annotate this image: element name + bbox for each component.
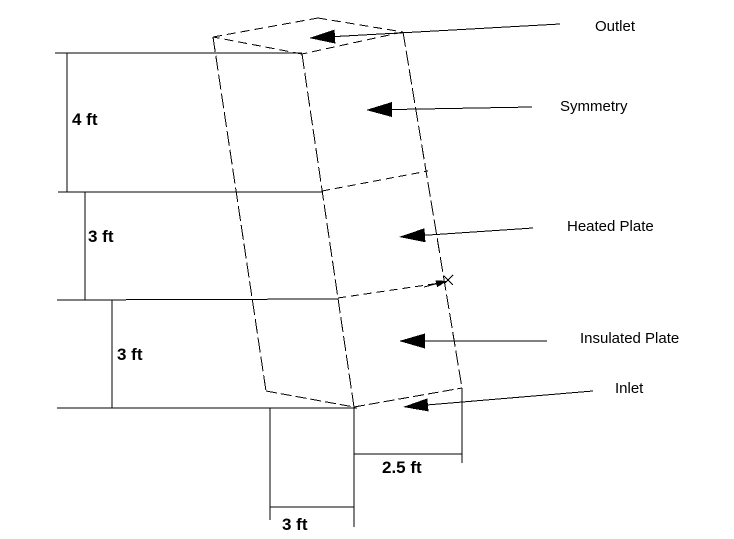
box-top-back-left xyxy=(213,18,318,37)
box-bottom-left-edge xyxy=(266,391,354,407)
box-edge-front xyxy=(302,54,354,407)
diagram-canvas: Outlet Symmetry Heated Plate Insulated P… xyxy=(0,0,734,539)
divider-insulated-top xyxy=(338,283,440,298)
inlet-arrow-line xyxy=(428,391,593,405)
dimension-lower-height: 3 ft xyxy=(117,346,143,364)
x-mark-stroke-2 xyxy=(444,275,453,284)
dimension-base-bottom: 3 ft xyxy=(282,516,308,534)
symmetry-arrow-head xyxy=(366,102,392,117)
label-outlet: Outlet xyxy=(595,19,635,35)
dimension-middle-height: 3 ft xyxy=(88,228,114,246)
box-edge-right xyxy=(403,32,462,388)
label-insulated-plate: Insulated Plate xyxy=(580,331,679,347)
diagram-geometry xyxy=(0,0,734,539)
dimension-upper-height: 4 ft xyxy=(72,111,98,129)
box-bottom-right-edge xyxy=(354,388,462,407)
outlet-arrow-line xyxy=(335,24,560,37)
heated-plate-arrow-head xyxy=(399,228,425,242)
ext-line-3 xyxy=(57,299,338,300)
outlet-arrow-head xyxy=(309,30,335,44)
divider-heated-top xyxy=(322,171,428,191)
insulated-plate-arrow-head xyxy=(399,334,425,349)
symmetry-arrow-line xyxy=(392,107,532,110)
label-inlet: Inlet xyxy=(615,381,643,397)
dimension-base-right: 2.5 ft xyxy=(382,459,422,477)
label-symmetry: Symmetry xyxy=(560,99,628,115)
box-top-back-right xyxy=(318,18,403,32)
box-top-front-left xyxy=(213,37,302,54)
label-heated-plate: Heated Plate xyxy=(567,219,654,235)
heated-plate-arrow-line xyxy=(425,228,533,235)
box-edge-left xyxy=(213,37,266,391)
inlet-arrow-head xyxy=(403,398,428,411)
x-mark-stroke-1 xyxy=(444,276,453,285)
